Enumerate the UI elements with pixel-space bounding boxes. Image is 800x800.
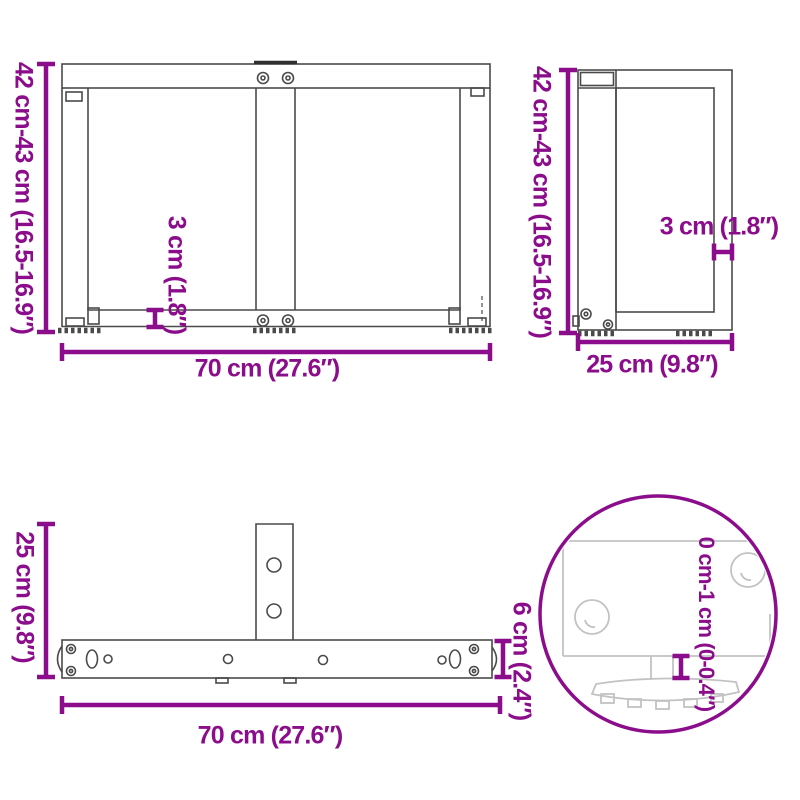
side-height-label: 42 cm-43 cm (16.5-16.9″) [529,66,554,338]
top-width-label: 70 cm (27.6″) [198,724,343,749]
front-plate-thickness-label: 3 cm (1.8″) [164,216,189,335]
top-depth-label: 25 cm (9.8″) [12,531,37,663]
top-bar-width-label: 6 cm (2.4″) [509,602,534,721]
diagram-canvas: 42 cm-43 cm (16.5-16.9″) 3 cm (1.8″) 70 … [0,0,800,800]
front-width-label: 70 cm (27.6″) [195,357,340,382]
top-view-dimension-lines [37,524,512,714]
side-plate-thickness-label: 3 cm (1.8″) [660,215,779,240]
foot-adjustment-label: 0 cm-1 cm (0-0.4″) [695,537,717,712]
front-view-dimension-lines [37,64,490,361]
foot-detail-drawing [563,541,790,709]
foot-detail-dimension-lines [673,656,690,678]
front-view-drawing [58,63,492,331]
top-view-drawing [58,524,497,683]
dimension-diagram [0,0,800,800]
front-height-label: 42 cm-43 cm (16.5-16.9″) [11,62,36,334]
side-depth-label: 25 cm (9.8″) [586,353,718,378]
side-view-drawing [573,70,732,334]
